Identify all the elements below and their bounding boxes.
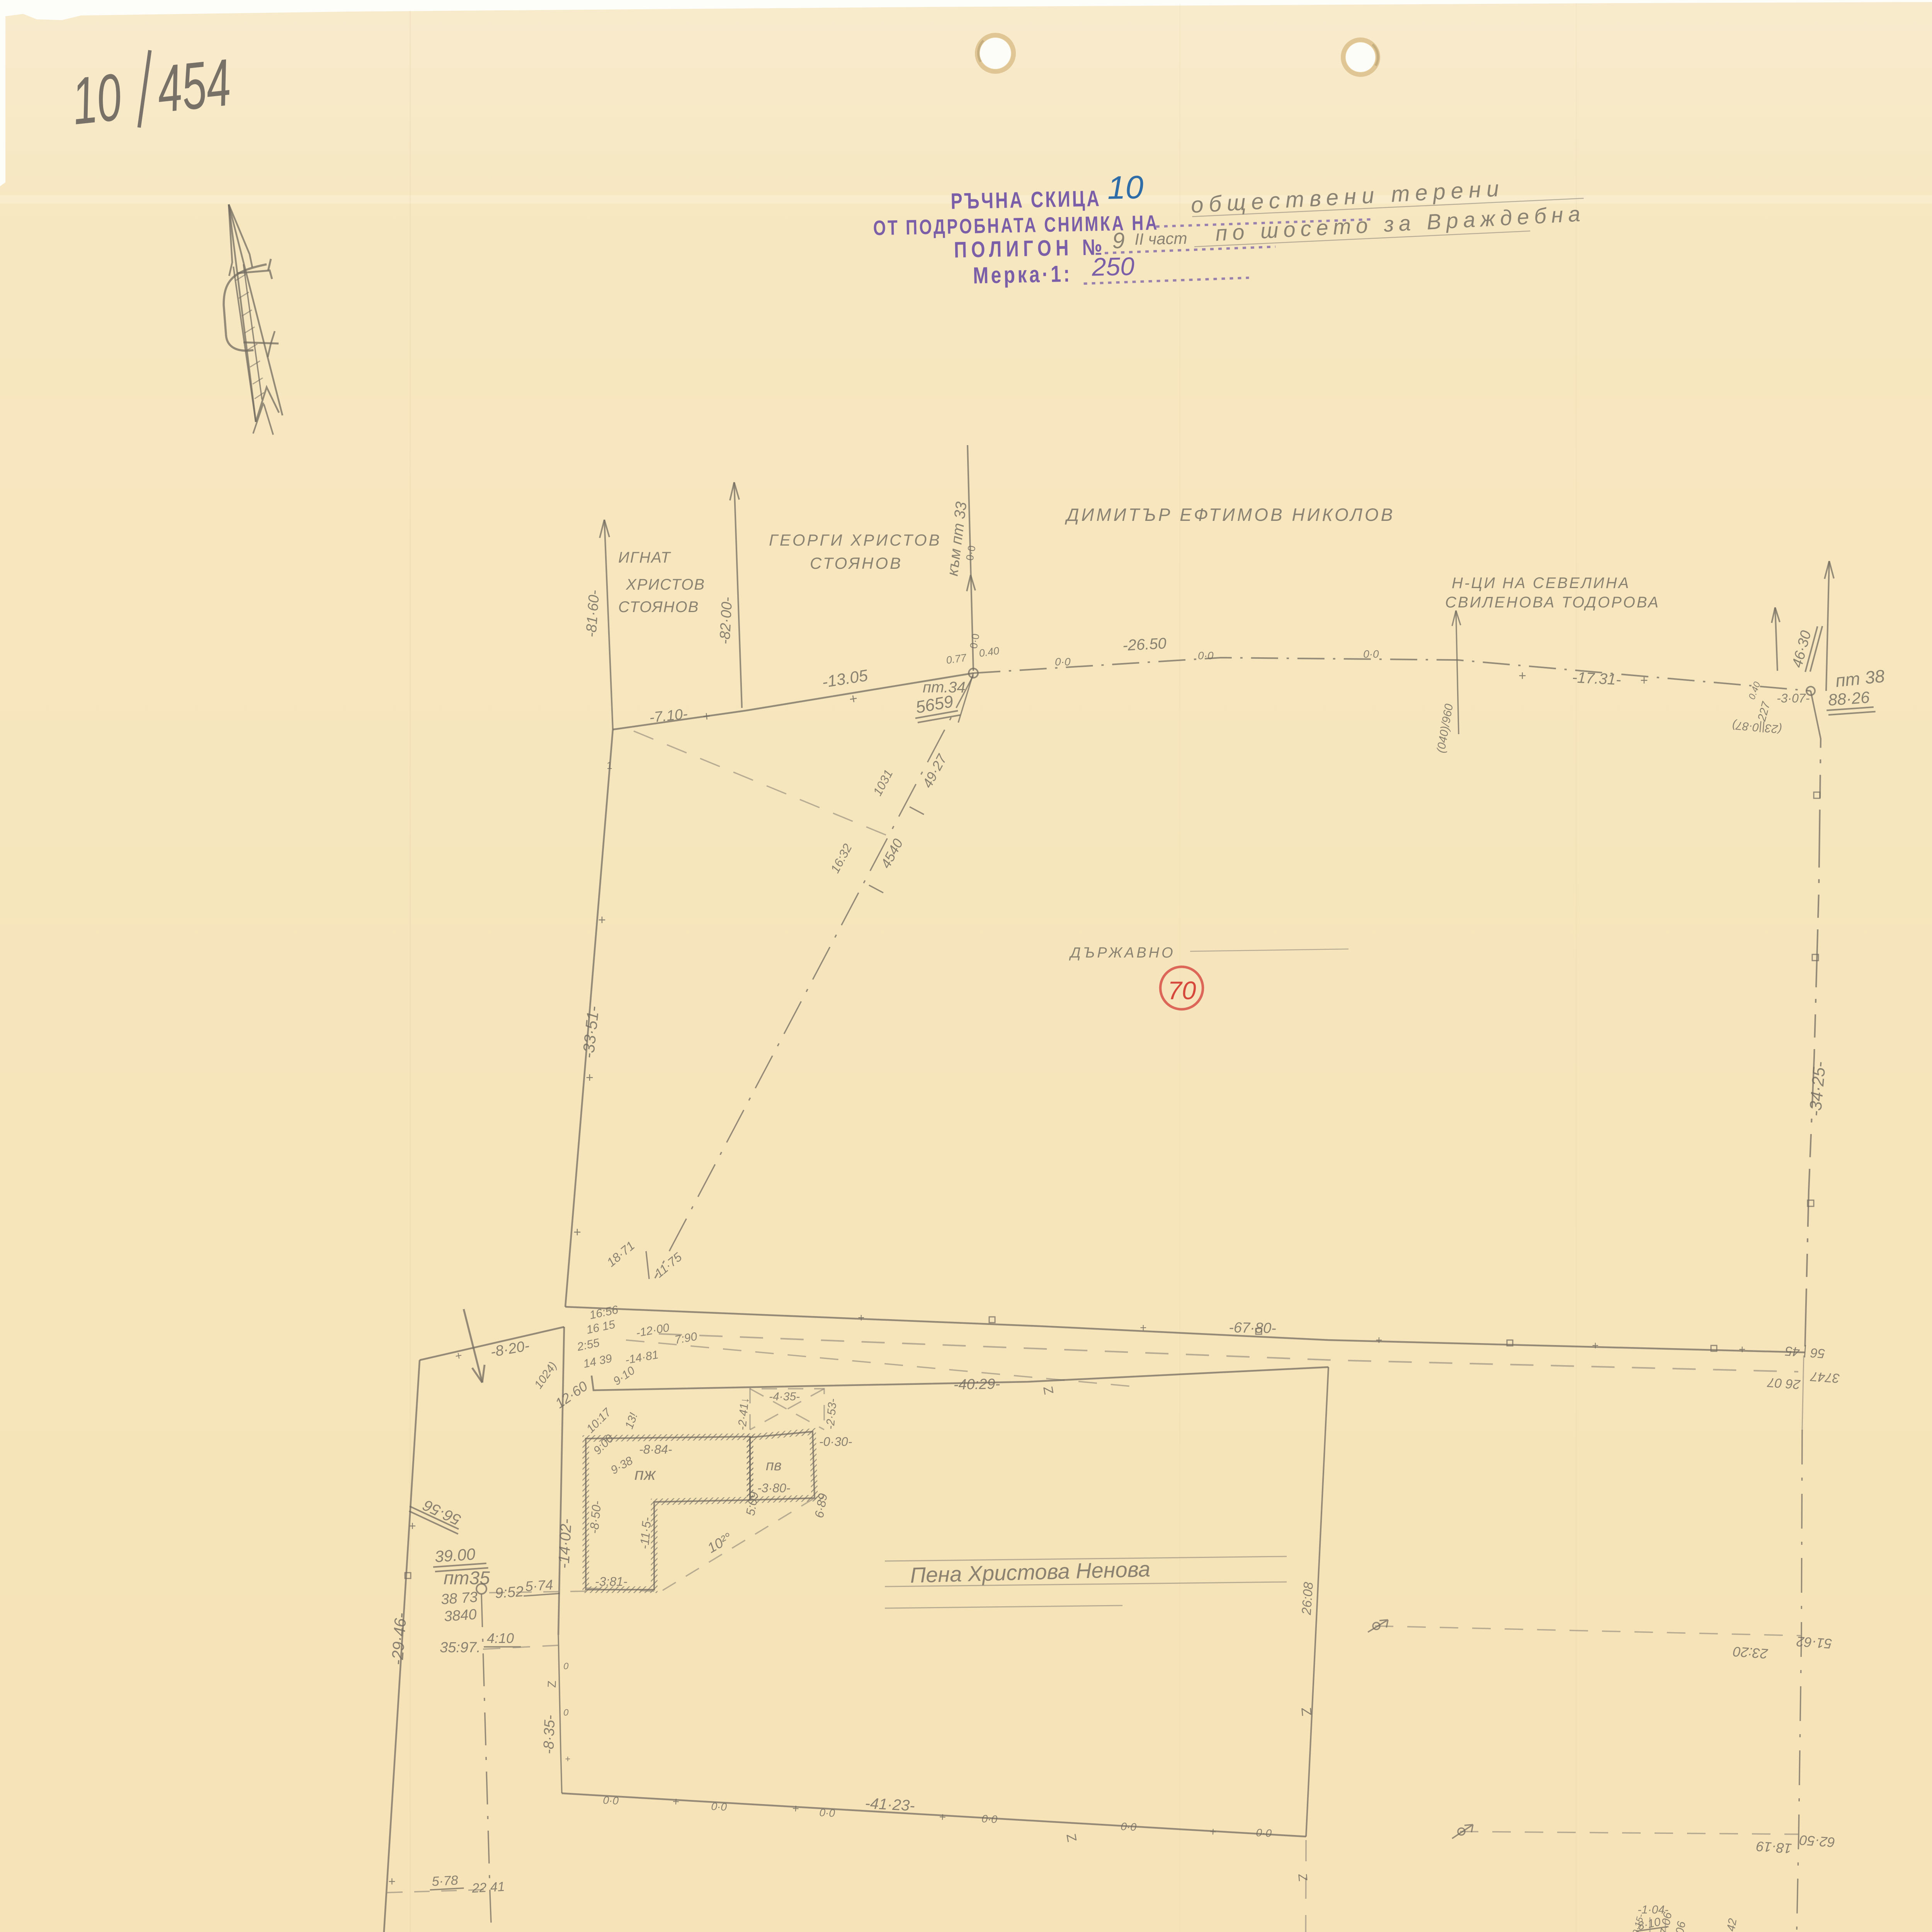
svg-text:+: + (1592, 1339, 1599, 1352)
svg-text:9:52: 9:52 (495, 1583, 524, 1602)
svg-text:+: + (1640, 673, 1648, 688)
svg-text:-3:81-: -3:81- (595, 1575, 628, 1588)
svg-text:19·85.: 19·85. (1549, 1930, 1591, 1932)
svg-text:1: 1 (607, 760, 612, 771)
svg-text:0·0: 0·0 (1055, 656, 1071, 668)
svg-text:-8·35-: -8·35- (541, 1715, 558, 1755)
svg-text:4:10: 4:10 (487, 1630, 514, 1646)
svg-text:18·19: 18·19 (1756, 1838, 1793, 1857)
svg-text:-67·80-: -67·80- (1229, 1320, 1276, 1337)
svg-text:+: + (409, 1519, 416, 1533)
svg-text:-82·00-: -82·00- (717, 597, 735, 645)
svg-text:ДИМИТЪР ЕФТИМОВ НИКОЛОВ: ДИМИТЪР ЕФТИМОВ НИКОЛОВ (1065, 505, 1395, 525)
svg-text:+: + (1376, 1334, 1383, 1347)
svg-text:СТОЯНОВ: СТОЯНОВ (810, 554, 903, 572)
svg-text:23:20: 23:20 (1733, 1644, 1769, 1662)
svg-text:56 | 45: 56 | 45 (1785, 1344, 1826, 1361)
svg-text:0·0: 0·0 (1198, 650, 1214, 662)
svg-text:Z: Z (546, 1680, 559, 1688)
svg-text:пв: пв (766, 1458, 782, 1474)
svg-text:+: + (586, 1070, 594, 1085)
svg-text:ГЕОРГИ ХРИСТОВ: ГЕОРГИ ХРИСТОВ (769, 531, 942, 549)
svg-text:ИГНАТ: ИГНАТ (618, 549, 671, 566)
svg-text:250: 250 (1091, 252, 1135, 281)
svg-text:пж: пж (634, 1465, 656, 1484)
svg-text:-41·23-: -41·23- (865, 1795, 915, 1815)
svg-text:-40:29-: -40:29- (953, 1376, 1000, 1393)
svg-text:+: + (702, 709, 711, 724)
svg-text:РЪЧНА СКИЦА: РЪЧНА СКИЦА (951, 186, 1101, 214)
svg-text:-11·5-: -11·5- (637, 1517, 654, 1550)
svg-text:-4·35-: -4·35- (769, 1390, 800, 1403)
svg-text:-29·46-: -29·46- (388, 1612, 410, 1665)
svg-text:ДЪРЖАВНО: ДЪРЖАВНО (1069, 945, 1175, 961)
svg-text:+: + (1739, 1343, 1746, 1356)
svg-text:-3·07-: -3·07- (1777, 691, 1810, 705)
svg-text:0·0: 0·0 (603, 1794, 619, 1807)
svg-text:5·78: 5·78 (432, 1873, 459, 1889)
svg-text:26 07: 26 07 (1767, 1375, 1801, 1392)
svg-text:Z: Z (1296, 1873, 1310, 1882)
svg-text:-81·60-: -81·60- (583, 589, 602, 638)
svg-text:62·50: 62·50 (1799, 1832, 1836, 1850)
svg-text:СТОЯНОВ: СТОЯНОВ (618, 599, 699, 616)
svg-text:0·0: 0·0 (819, 1806, 835, 1819)
svg-text:39.00: 39.00 (434, 1545, 476, 1566)
svg-text:+: + (672, 1795, 680, 1808)
svg-text:+: + (598, 913, 606, 927)
svg-text:+: + (1519, 668, 1526, 683)
svg-text:35:97.: 35:97. (440, 1639, 481, 1656)
svg-text:10: 10 (1107, 169, 1144, 206)
svg-text:+: + (573, 1225, 581, 1240)
svg-text:-8·84-: -8·84- (639, 1442, 672, 1456)
svg-text:+: + (0, 0, 7, 3)
svg-text:454: 454 (153, 45, 234, 126)
svg-text:-26.50: -26.50 (1122, 635, 1167, 654)
svg-text:3747: 3747 (1810, 1369, 1840, 1386)
svg-text:88·26: 88·26 (1828, 688, 1871, 709)
svg-text:0·0: 0·0 (1121, 1820, 1137, 1833)
svg-text:26:08: 26:08 (1299, 1582, 1316, 1616)
svg-text:+: + (565, 1754, 570, 1764)
svg-text:+: + (388, 1874, 396, 1888)
svg-text:+: + (939, 1811, 946, 1824)
svg-text:Н-ЦИ НА СЕВЕЛИНА: Н-ЦИ НА СЕВЕЛИНА (1452, 575, 1630, 592)
svg-text:+: + (1140, 1321, 1147, 1334)
svg-text:5·74: 5·74 (525, 1577, 554, 1594)
svg-text:3840: 3840 (444, 1606, 477, 1625)
svg-text:0: 0 (563, 1661, 569, 1672)
svg-text:0·0: 0·0 (711, 1800, 727, 1813)
svg-text:0·0: 0·0 (1363, 648, 1379, 660)
svg-text:-3·80-: -3·80- (757, 1481, 790, 1495)
svg-text:Мерка·1:: Мерка·1: (973, 260, 1072, 288)
svg-text:Z: Z (1298, 1707, 1315, 1716)
svg-text:10: 10 (68, 60, 125, 139)
svg-text:-8·50-: -8·50- (587, 1500, 604, 1534)
svg-text:-0·30-: -0·30- (819, 1435, 852, 1449)
svg-text:+: + (1209, 1825, 1217, 1838)
svg-text:0: 0 (563, 1708, 569, 1718)
svg-text:0·0: 0·0 (981, 1813, 998, 1825)
svg-text:22 41: 22 41 (471, 1879, 505, 1896)
svg-text:ПОЛИГОН №: ПОЛИГОН № (954, 235, 1107, 263)
svg-text:+: + (858, 1311, 865, 1324)
svg-text:9: 9 (1112, 228, 1125, 253)
svg-text:-2·53-: -2·53- (824, 1398, 839, 1430)
svg-text:51·62: 51·62 (1796, 1634, 1833, 1652)
svg-text:ХРИСТОВ: ХРИСТОВ (626, 576, 705, 593)
svg-text:-14·02-: -14·02- (555, 1518, 575, 1569)
svg-text:+: + (792, 1802, 799, 1815)
svg-text:СВИЛЕНОВА ТОДОРОВА: СВИЛЕНОВА ТОДОРОВА (1445, 594, 1660, 611)
svg-text:38 73: 38 73 (440, 1589, 478, 1608)
svg-text:-17.31-: -17.31- (1572, 669, 1622, 689)
svg-text:II част: II част (1134, 229, 1187, 248)
svg-text:0·0: 0·0 (1256, 1827, 1272, 1839)
svg-text:70: 70 (1168, 976, 1196, 1005)
